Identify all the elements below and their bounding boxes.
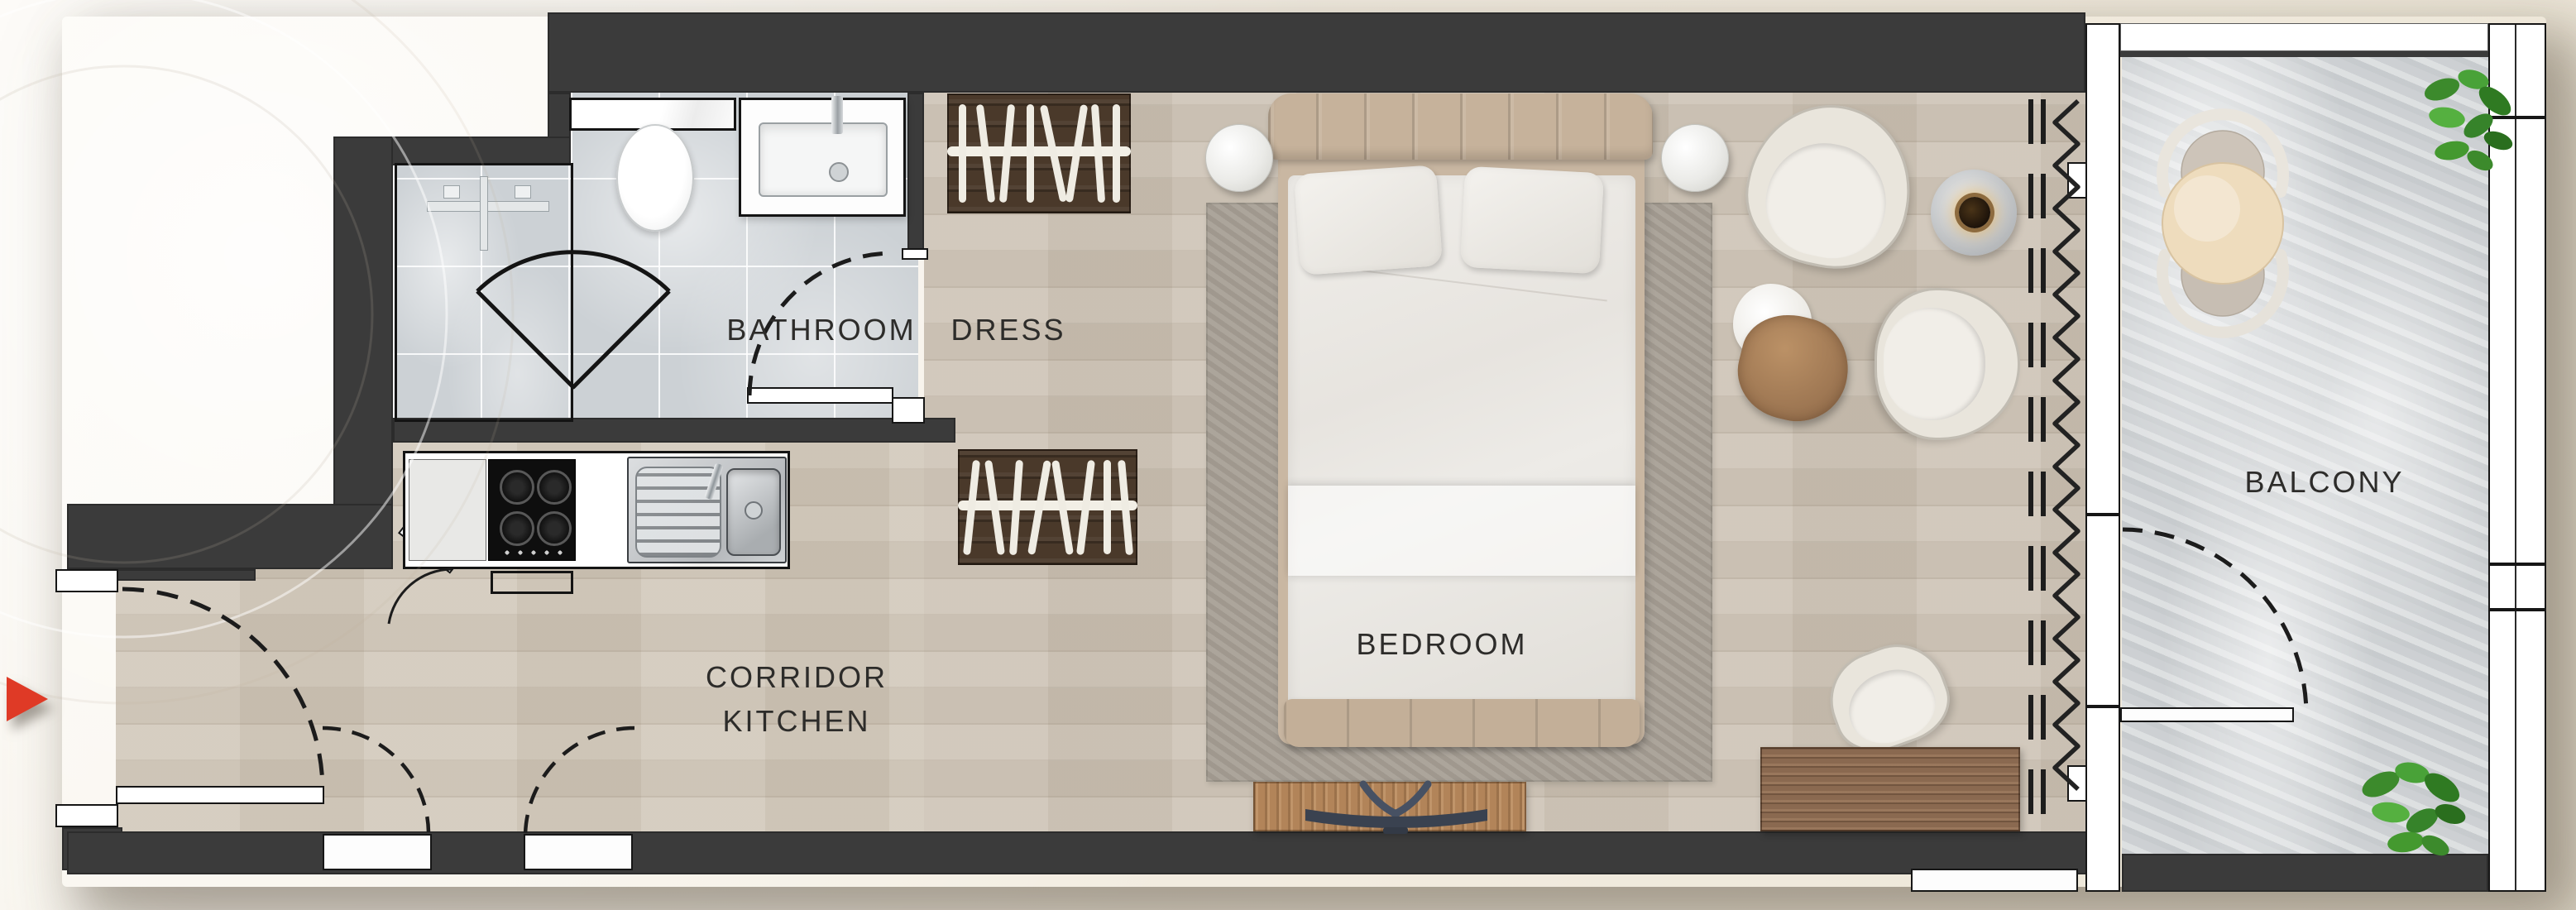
bottom-wall-opening-1 (323, 834, 432, 870)
sink-drainboard (635, 467, 721, 558)
entry-jamb-bottom (55, 804, 118, 827)
window-frame-tab-1 (2067, 162, 2087, 199)
shower-knob (443, 185, 460, 199)
hob-burner (537, 470, 572, 505)
nightstand-left (1205, 124, 1273, 192)
shower-pipe (480, 176, 488, 251)
label-bedroom: BEDROOM (1356, 627, 1527, 662)
balcony-floor (2122, 56, 2488, 854)
railing-divider-1 (2488, 116, 2546, 119)
railing-divider-2 (2488, 563, 2546, 566)
sink-drain (745, 501, 763, 520)
hanger-bar (1027, 104, 1034, 203)
hanger-rail (947, 146, 1131, 156)
bed-headboard (1268, 93, 1653, 160)
balcony-top-edge (2120, 51, 2488, 57)
railing-divider-3 (2488, 608, 2546, 611)
shower-knob-2 (515, 185, 531, 199)
window-frame-joint-1 (2085, 513, 2120, 516)
nightstand-right (1661, 124, 1729, 192)
balcony-railing (2488, 23, 2546, 892)
hob-burner (500, 511, 534, 546)
hob-knobs (502, 549, 565, 556)
duvet-fold (1288, 486, 1635, 577)
hanger-bar (1113, 104, 1120, 203)
kitchen-counter (403, 451, 790, 569)
kitchen-appliance-panel (409, 459, 486, 561)
window-frame-joint-2 (2085, 705, 2120, 708)
bed-pillow-right (1460, 166, 1604, 275)
hanger-bar (959, 104, 966, 203)
counter-front-outline (491, 571, 573, 594)
kitchen-hob (488, 459, 576, 561)
label-bathroom: BATHROOM (726, 313, 916, 347)
top-wall (548, 12, 2085, 93)
armchair-seat (1884, 308, 1985, 420)
bathroom-east-jamb (902, 248, 928, 260)
hob-burner (500, 470, 534, 505)
wardrobe-upper (947, 93, 1131, 213)
bathroom-door-jamb (892, 397, 925, 424)
entrance-arrow-icon (7, 677, 48, 721)
vanity-basin (759, 122, 888, 197)
hob-burner (537, 511, 572, 546)
vanity-faucet (831, 96, 843, 134)
label-kitchen-line: KITCHEN (706, 699, 888, 743)
balcony-top-band (2120, 23, 2488, 51)
label-dress: DRESS (950, 313, 1065, 347)
hanger-bar (1104, 460, 1111, 555)
kitchen-sink-unit (627, 457, 787, 563)
bed-pillow-left (1294, 165, 1443, 275)
window-frame-tab-2 (2067, 765, 2087, 802)
vanity-drain (829, 162, 849, 182)
bottom-wall-opening-2 (524, 834, 633, 870)
tv-console (1253, 782, 1526, 831)
railing-inner-line (2515, 25, 2516, 890)
desk (1760, 747, 2020, 831)
floor-plan-canvas: BATHROOM DRESS BEDROOM CORRIDOR KITCHEN … (0, 0, 2576, 910)
balcony-bottom-wall (2122, 854, 2488, 892)
balcony-sill (1911, 869, 2078, 892)
toilet (616, 124, 694, 232)
entry-door-leaf (116, 786, 324, 804)
corridor-step-wall (67, 504, 393, 569)
shower-rail (427, 201, 549, 212)
bathroom-east-wall (907, 93, 924, 252)
balcony-door-leaf (2120, 707, 2294, 722)
window-frame (2085, 23, 2120, 892)
bed-footboard (1284, 699, 1640, 747)
wardrobe-lower (958, 449, 1137, 565)
bathroom-door-leaf (747, 387, 893, 404)
entry-jamb-top (55, 569, 118, 592)
floor-lamp (1931, 170, 2017, 256)
bathroom-west-wall (333, 136, 393, 509)
lamp-bulb (1959, 197, 1990, 228)
label-balcony: BALCONY (2244, 465, 2404, 500)
label-corridor-line: CORRIDOR (706, 655, 888, 699)
label-corridor-kitchen: CORRIDOR KITCHEN (706, 655, 888, 743)
armchair-seat (1755, 132, 1897, 268)
